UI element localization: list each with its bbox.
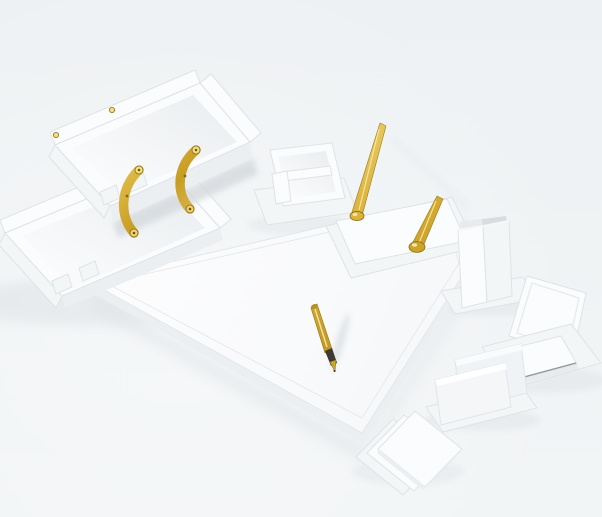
tray-screw [53,132,58,137]
pen-nib-tip [334,370,336,372]
tray-screw [109,107,114,112]
memo-box-compartment [272,171,291,204]
pen-cup-left-face [458,226,487,308]
pen-socket [350,211,364,220]
product-photo [0,0,602,517]
pen-cup-right-face [483,221,512,302]
desk-set-scene [0,0,602,517]
pen-socket [409,242,425,253]
